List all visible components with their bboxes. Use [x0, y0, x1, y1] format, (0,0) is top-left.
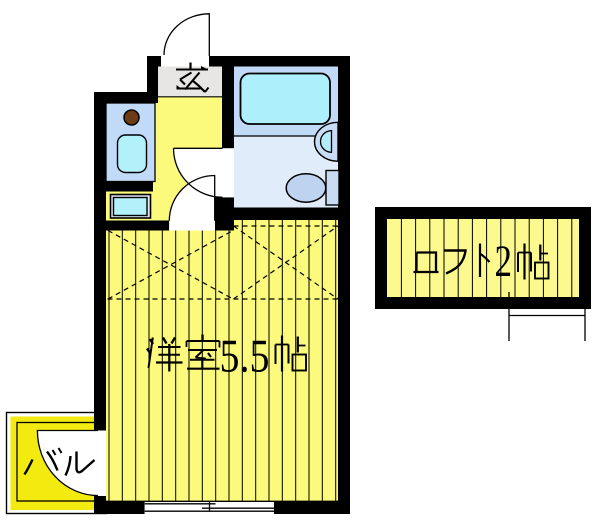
svg-text:5.5: 5.5 [220, 331, 270, 383]
svg-text:2: 2 [495, 236, 513, 286]
